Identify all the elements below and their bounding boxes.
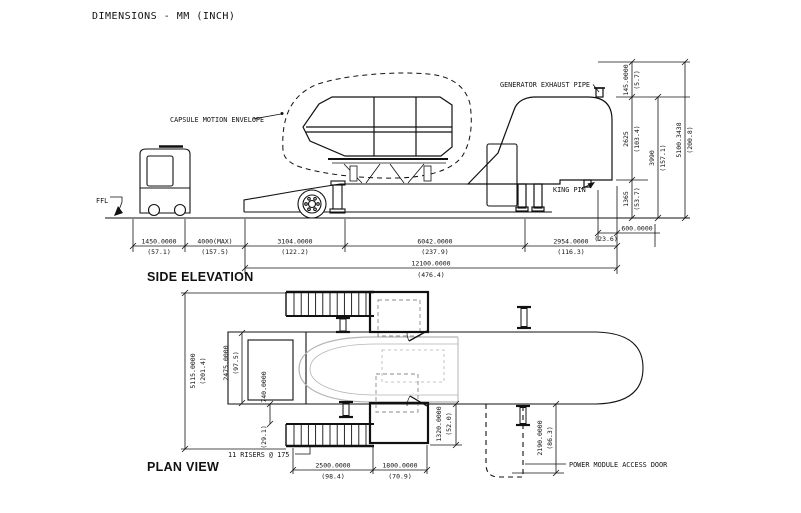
side-dim-h4-mm: 2954.0000 [553,238,588,246]
side-dim-v0-in: (5.7) [633,70,641,90]
side-dim-h6-in: (476.4) [417,271,444,279]
generator-exhaust-pipe-label: GENERATOR EXHAUST PIPE [500,81,590,89]
side-dim-h0-mm: 1450.0000 [141,238,176,246]
side-dim-v1-in: (103.4) [633,125,641,152]
plan-dim-v4-in: (86.3) [546,426,554,449]
plan-dim-v1-in: (97.5) [232,351,240,374]
side-dim-h0-in: (57.1) [147,248,170,256]
drawing-title: DIMENSIONS - MM (INCH) [92,11,235,22]
king-pin-label: KING PIN [553,186,586,194]
simulator-capsule [303,97,452,156]
plan-dim-v2-in: (29.1) [260,425,268,448]
side-dim-h3-mm: 6042.0000 [417,238,452,246]
side-dim-h1-in: (157.5) [201,248,228,256]
plan-view-drawing: 5115.0000 (201.4) 2475.0000 (97.5) 740.0… [147,290,668,481]
leader-dot-icon [281,112,284,115]
side-elevation-bottom-dimensions: 1450.0000 (57.1) 4000(MAX) (157.5) 3104.… [130,186,660,279]
side-dim-v2-in: (157.1) [659,144,667,171]
plan-dim-v3-mm: 1320.0000 [435,406,443,441]
side-dim-h4-in: (116.3) [557,248,584,256]
motion-platform [328,159,448,183]
side-dim-v3-in: (200.8) [686,126,694,153]
side-dim-h2-in: (122.2) [281,248,308,256]
plan-dim-h1-mm: 1800.0000 [382,462,417,470]
plan-dim-v1-mm: 2475.0000 [222,345,230,380]
plan-dim-v0-in: (201.4) [199,357,207,384]
side-dim-h1-mm: 4000(MAX) [197,238,232,246]
risers-label: 11 RISERS @ 175 [228,451,289,459]
ffl-datum: FFL [96,197,123,216]
side-dim-h2-mm: 3104.0000 [277,238,312,246]
gooseneck-body [468,88,612,211]
plan-trailer-body [228,332,643,404]
equipment-cabinet [487,144,517,206]
power-module-access-door-outline [486,404,523,477]
plan-dim-v3-in: (52.0) [445,412,453,435]
ffl-arrow-icon [114,206,123,216]
plan-view-title: PLAN VIEW [147,460,219,474]
plan-capsule-outline [299,337,458,402]
plan-dim-v4-mm: 2190.0000 [536,420,544,455]
side-dim-v4-in: (53.7) [633,187,641,210]
plan-dim-v2-mm: 740.0000 [260,371,268,402]
engineering-drawing-canvas: DIMENSIONS - MM (INCH) FFL [0,0,801,513]
side-dim-v0-mm: 145.0000 [622,64,630,95]
side-elevation-drawing: FFL [96,59,694,284]
side-dim-h5-mm: 600.0000 [621,225,652,233]
capsule-motion-envelope-label: CAPSULE MOTION ENVELOPE [170,116,264,124]
plan-dim-v0-mm: 5115.0000 [189,353,197,388]
side-dim-v2-mm: 3990 [648,150,656,166]
rear-jack [518,184,526,208]
plan-landing-bottom [370,396,428,443]
wheel [298,190,326,218]
plan-view-callouts: 11 RISERS @ 175 POWER MODULE ACCESS DOOR [228,447,668,469]
ffl-label: FFL [96,197,108,205]
plan-dim-h0-in: (98.4) [321,473,344,481]
plan-stairs-top [286,292,374,316]
side-dim-v1-mm: 2625 [622,131,630,147]
plan-dim-h1-in: (70.9) [388,473,411,481]
plan-landing-top [370,292,428,341]
plan-dim-h0-mm: 2500.0000 [315,462,350,470]
side-dim-h3-in: (237.9) [421,248,448,256]
plan-stairs-bottom [286,424,374,446]
plan-jacks [336,307,531,425]
side-dim-v4-mm: 1365 [622,191,630,207]
side-elevation-title: SIDE ELEVATION [147,270,254,284]
shunt-truck [140,147,190,216]
trailer-bed [244,144,560,218]
side-elevation-callouts: CAPSULE MOTION ENVELOPE GENERATOR EXHAUS… [170,81,599,194]
capsule-motion-envelope-outline [283,73,472,178]
side-dim-h6-mm: 12100.0000 [411,260,450,268]
side-dim-h5-in: (23.6) [594,235,617,243]
power-module-access-door-label: POWER MODULE ACCESS DOOR [569,461,668,469]
side-dim-v3-mm: 5100.3438 [675,122,683,157]
